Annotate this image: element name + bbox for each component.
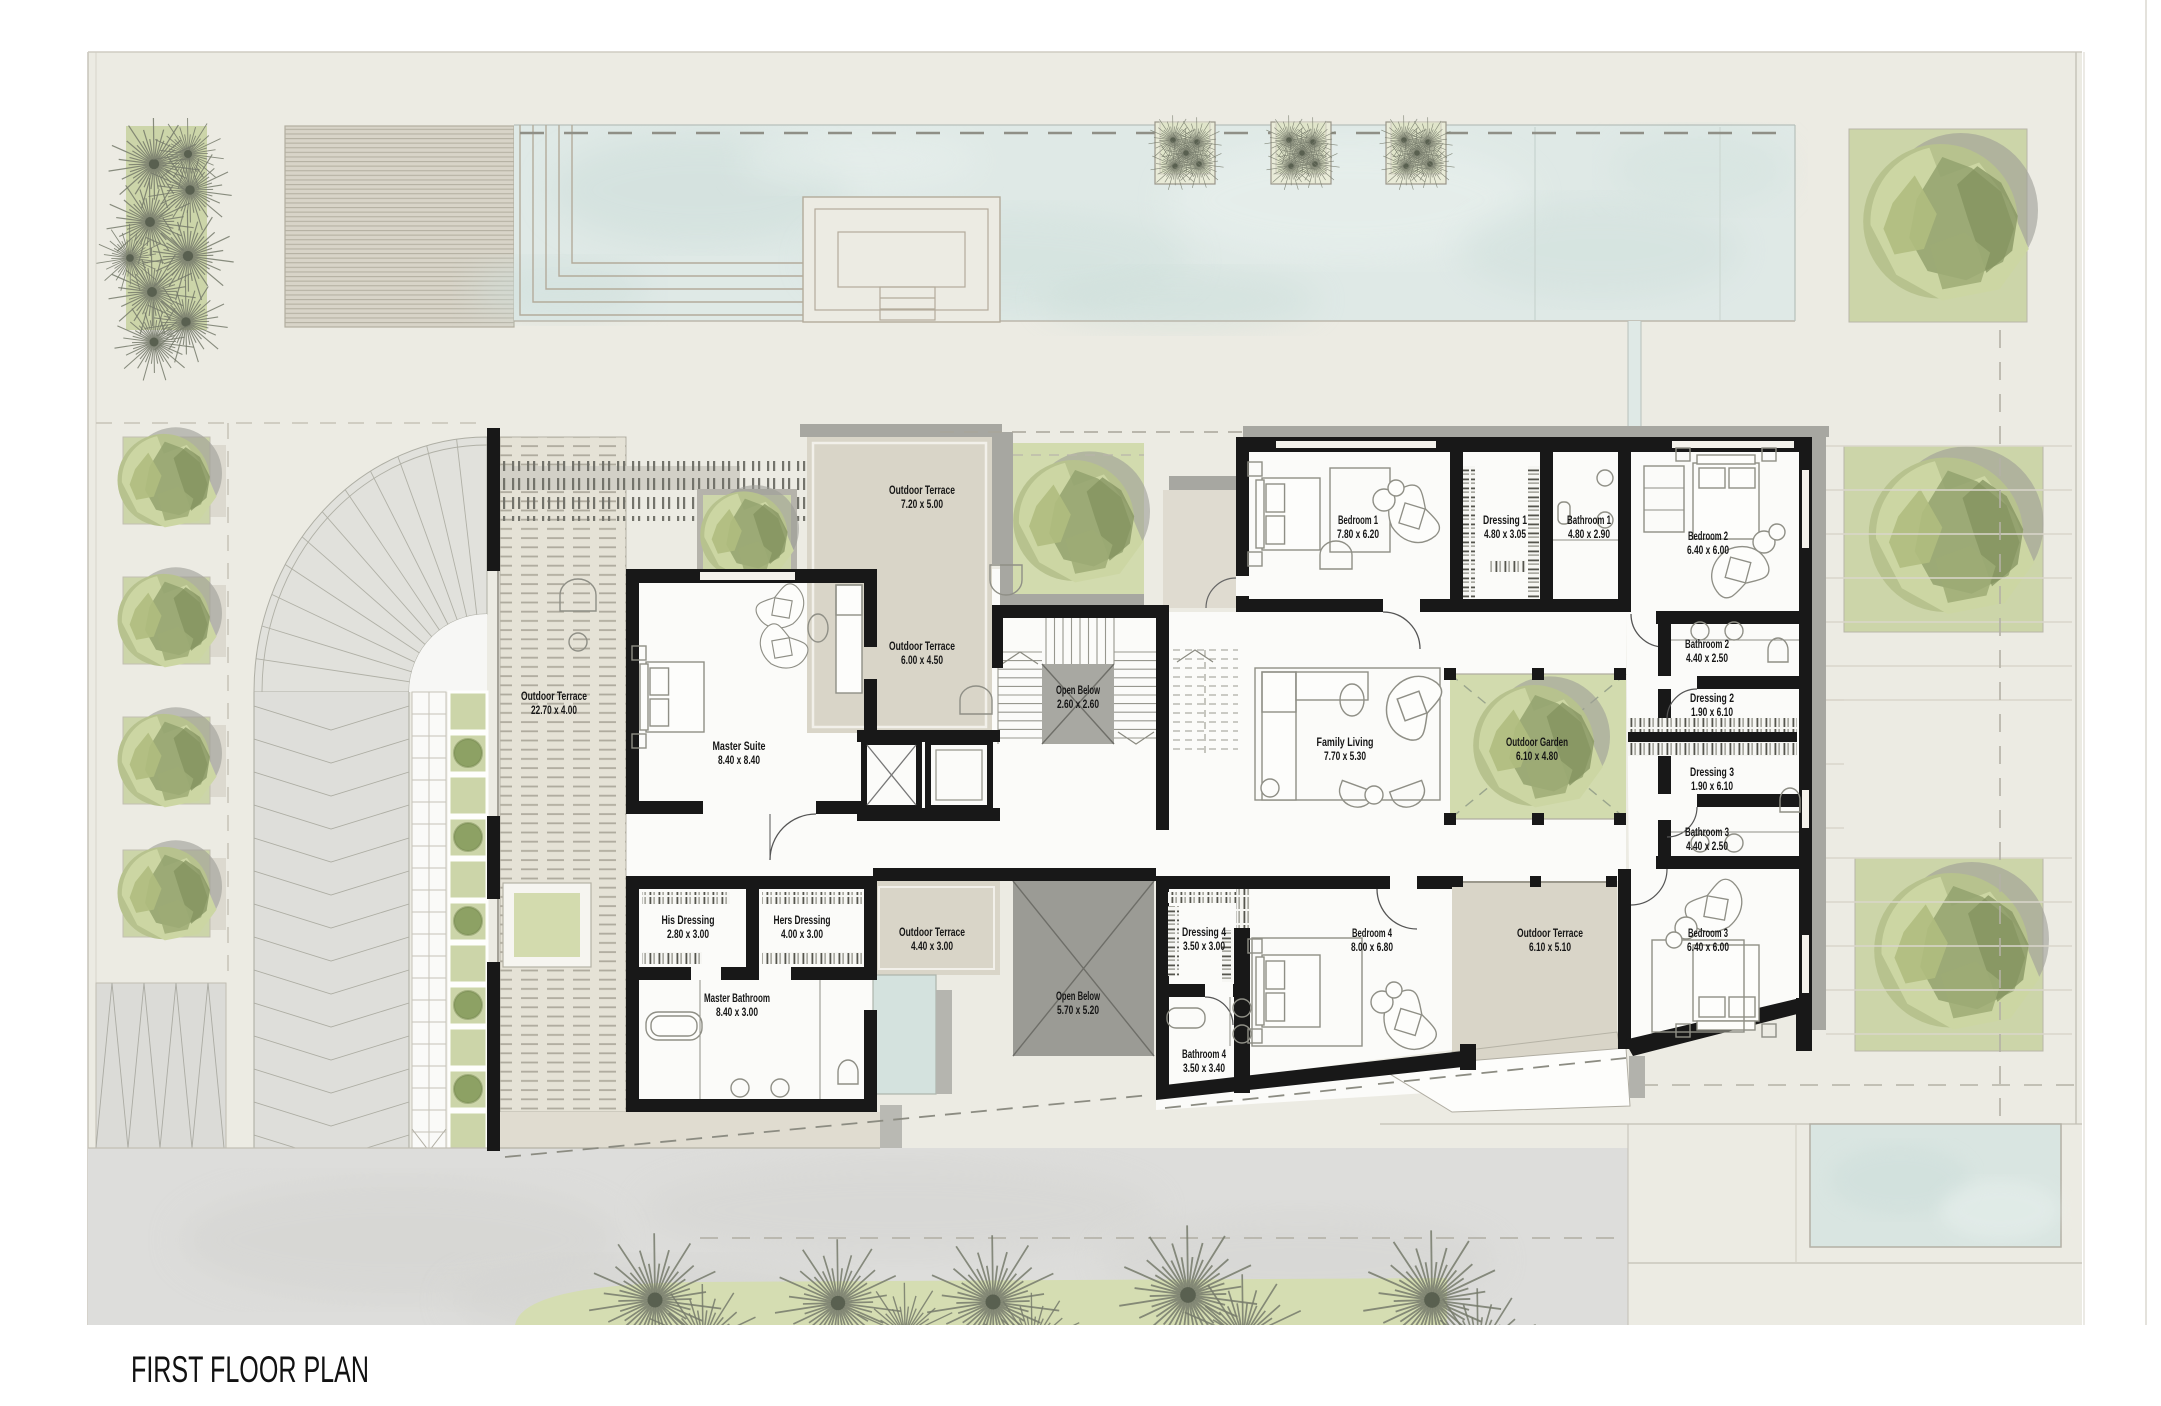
svg-text:Master Suite: Master Suite <box>713 741 766 753</box>
svg-text:Bathroom 4: Bathroom 4 <box>1182 1049 1226 1061</box>
svg-text:FIRST FLOOR PLAN: FIRST FLOOR PLAN <box>131 1349 369 1390</box>
svg-text:Outdoor Garden: Outdoor Garden <box>1506 737 1568 749</box>
svg-text:4.40 x 3.00: 4.40 x 3.00 <box>911 941 953 953</box>
svg-text:7.80 x 6.20: 7.80 x 6.20 <box>1337 529 1379 541</box>
svg-text:Master Bathroom: Master Bathroom <box>704 993 770 1005</box>
svg-text:Dressing 1: Dressing 1 <box>1483 515 1527 527</box>
svg-text:Bedroom 1: Bedroom 1 <box>1338 515 1378 527</box>
svg-text:Bathroom 2: Bathroom 2 <box>1685 639 1729 651</box>
svg-text:Open Below: Open Below <box>1056 685 1100 697</box>
svg-text:4.80 x 2.90: 4.80 x 2.90 <box>1568 529 1610 541</box>
svg-text:6.10 x 4.80: 6.10 x 4.80 <box>1516 751 1558 763</box>
svg-text:His Dressing: His Dressing <box>662 915 715 927</box>
svg-text:7.20 x 5.00: 7.20 x 5.00 <box>901 499 943 511</box>
svg-text:8.00 x 6.80: 8.00 x 6.80 <box>1351 942 1393 954</box>
svg-text:Hers Dressing: Hers Dressing <box>774 915 831 927</box>
svg-text:7.70 x 5.30: 7.70 x 5.30 <box>1324 751 1366 763</box>
svg-text:22.70 x 4.00: 22.70 x 4.00 <box>531 705 577 717</box>
svg-text:6.40 x 6.00: 6.40 x 6.00 <box>1687 545 1729 557</box>
svg-text:Dressing 3: Dressing 3 <box>1690 767 1734 779</box>
svg-text:1.90 x 6.10: 1.90 x 6.10 <box>1691 781 1733 793</box>
svg-text:5.70 x 5.20: 5.70 x 5.20 <box>1057 1005 1099 1017</box>
svg-text:3.50 x 3.00: 3.50 x 3.00 <box>1183 941 1225 953</box>
svg-text:8.40 x 3.00: 8.40 x 3.00 <box>716 1007 758 1019</box>
svg-text:8.40 x 8.40: 8.40 x 8.40 <box>718 755 760 767</box>
svg-text:Outdoor Terrace: Outdoor Terrace <box>521 691 587 703</box>
svg-text:Bedroom 4: Bedroom 4 <box>1352 928 1392 940</box>
svg-text:2.80 x 3.00: 2.80 x 3.00 <box>667 929 709 941</box>
svg-text:Family Living: Family Living <box>1317 737 1374 749</box>
svg-text:4.40 x 2.50: 4.40 x 2.50 <box>1686 653 1728 665</box>
svg-text:Outdoor Terrace: Outdoor Terrace <box>889 641 955 653</box>
svg-text:2.60 x 2.60: 2.60 x 2.60 <box>1057 699 1099 711</box>
svg-text:Bedroom 3: Bedroom 3 <box>1688 928 1728 940</box>
svg-text:4.40 x 2.50: 4.40 x 2.50 <box>1686 841 1728 853</box>
svg-text:Dressing 4: Dressing 4 <box>1182 927 1226 939</box>
svg-text:6.10 x 5.10: 6.10 x 5.10 <box>1529 942 1571 954</box>
svg-text:1.90 x 6.10: 1.90 x 6.10 <box>1691 707 1733 719</box>
svg-text:Dressing 2: Dressing 2 <box>1690 693 1734 705</box>
svg-text:Bathroom 3: Bathroom 3 <box>1685 827 1729 839</box>
svg-text:Bedroom 2: Bedroom 2 <box>1688 531 1728 543</box>
svg-text:Open Below: Open Below <box>1056 991 1100 1003</box>
svg-text:4.00 x 3.00: 4.00 x 3.00 <box>781 929 823 941</box>
svg-text:6.00 x 4.50: 6.00 x 4.50 <box>901 655 943 667</box>
svg-text:3.50 x 3.40: 3.50 x 3.40 <box>1183 1063 1225 1075</box>
svg-text:Outdoor Terrace: Outdoor Terrace <box>899 927 965 939</box>
svg-text:4.80 x 3.05: 4.80 x 3.05 <box>1484 529 1526 541</box>
svg-text:Outdoor Terrace: Outdoor Terrace <box>1517 928 1583 940</box>
svg-text:Outdoor Terrace: Outdoor Terrace <box>889 485 955 497</box>
svg-text:6.40 x 6.00: 6.40 x 6.00 <box>1687 942 1729 954</box>
svg-text:Bathroom 1: Bathroom 1 <box>1567 515 1611 527</box>
